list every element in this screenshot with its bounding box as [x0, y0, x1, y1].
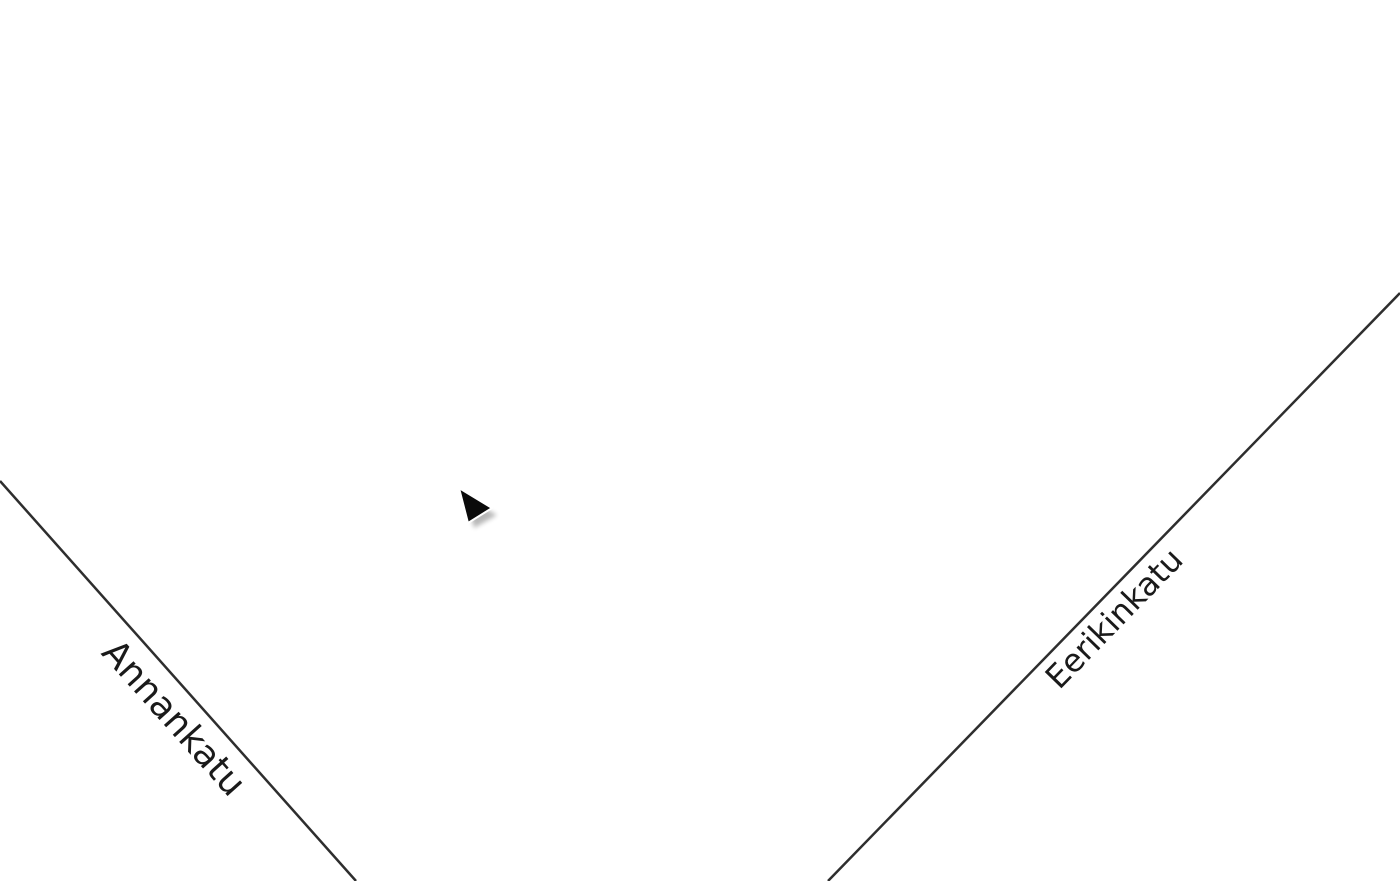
annankatu-street-label: Annankatu — [94, 632, 254, 804]
street-annankatu: Annankatu — [0, 481, 356, 881]
eerikinkatu-street-label: Eerikinkatu — [1038, 541, 1191, 697]
street-eerikinkatu: Eerikinkatu — [828, 293, 1400, 881]
eerikinkatu-street-line — [828, 293, 1400, 881]
cursor-icon — [459, 488, 497, 528]
annankatu-street-line — [0, 481, 356, 881]
floorplan-canvas: Annankatu Eerikinkatu — [0, 0, 1400, 881]
floorplan-page: Annankatu Eerikinkatu — [0, 0, 1400, 881]
